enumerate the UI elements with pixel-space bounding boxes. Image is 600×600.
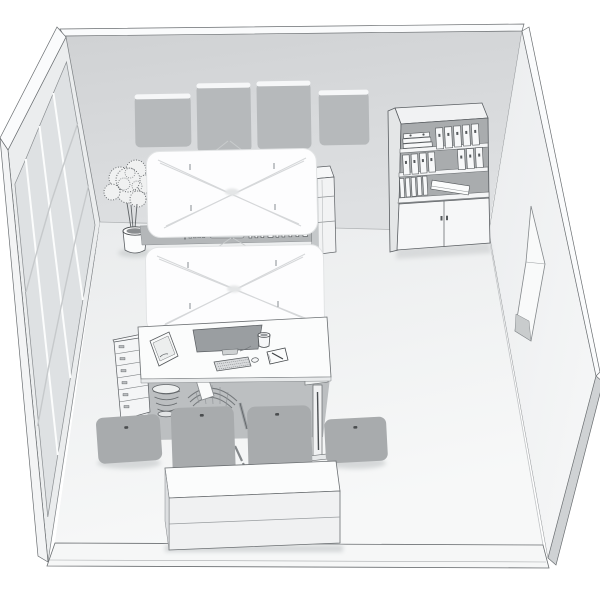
acoustic-panel-icon [319, 92, 370, 146]
sideboard [165, 461, 340, 550]
acoustic-panel-icon [135, 95, 192, 147]
bookshelf [388, 103, 490, 252]
mug [258, 333, 270, 348]
acoustic-panel-icon [196, 85, 251, 153]
desk [138, 317, 331, 383]
meeting-table-1 [146, 141, 318, 238]
cabinet-doors [397, 198, 490, 250]
acoustic-panel-icon [256, 83, 311, 150]
office-room-render [0, 0, 600, 600]
seat-panel-left [96, 414, 163, 464]
seat-panel-right [324, 416, 388, 463]
